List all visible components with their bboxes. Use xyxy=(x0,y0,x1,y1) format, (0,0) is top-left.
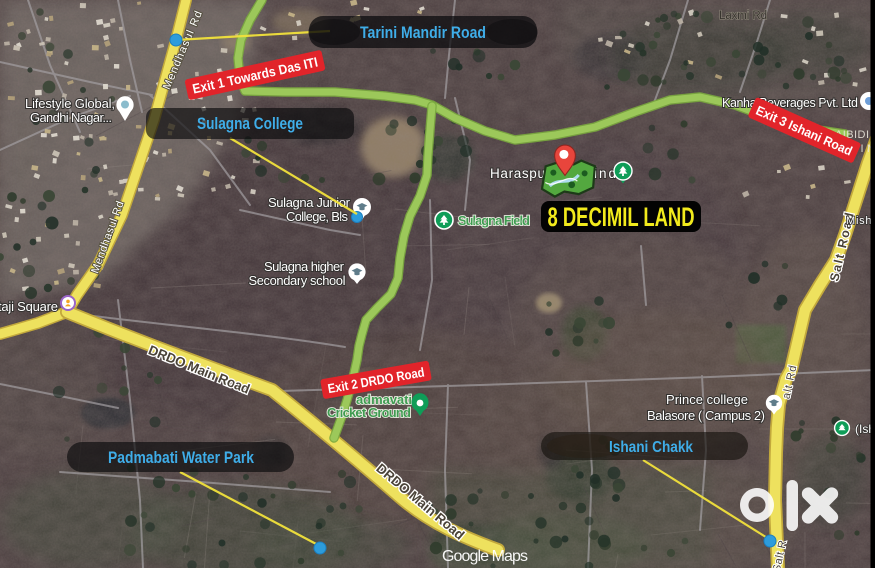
svg-text:Cricket Ground: Cricket Ground xyxy=(327,405,411,420)
svg-text:Sulagna College: Sulagna College xyxy=(197,114,303,133)
svg-text:Lifestyle Global,: Lifestyle Global, xyxy=(25,96,115,111)
svg-text:8 DECIMIL LAND: 8 DECIMIL LAND xyxy=(548,202,695,232)
svg-text:Secondary school: Secondary school xyxy=(249,273,346,288)
svg-text:Kanha Beverages Pvt. Ltd: Kanha Beverages Pvt. Ltd xyxy=(722,96,858,110)
svg-text:Padmabati Water Park: Padmabati Water Park xyxy=(108,448,254,467)
svg-text:Balasore ( Campus 2): Balasore ( Campus 2) xyxy=(647,408,765,423)
svg-text:Gandhi Nagar...: Gandhi Nagar... xyxy=(30,110,112,125)
svg-text:Prince college: Prince college xyxy=(666,392,748,407)
svg-text:taji Square: taji Square xyxy=(0,299,58,314)
svg-text:Sulagna higher: Sulagna higher xyxy=(264,259,345,274)
svg-text:Tarini Mandir Road: Tarini Mandir Road xyxy=(360,23,486,42)
svg-text:Laxmi Rd: Laxmi Rd xyxy=(719,10,767,22)
svg-text:College, Bls: College, Bls xyxy=(286,209,349,224)
svg-text:Google Maps: Google Maps xyxy=(442,548,528,565)
svg-text:Ishani Chakk: Ishani Chakk xyxy=(609,439,693,456)
svg-text:Sulagna Field: Sulagna Field xyxy=(458,213,530,228)
